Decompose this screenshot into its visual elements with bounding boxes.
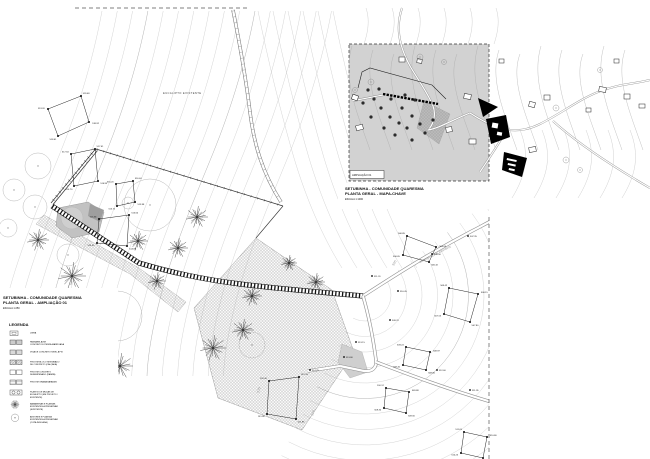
main-title-block: SETUBINHA - COMUNIDADE QUARESMA PLANTA G… [0, 288, 118, 459]
elevation-value: 518.92 [92, 123, 99, 125]
main-title-scale: ESCALA 1:250 [3, 307, 20, 310]
elevation-value: 506.32 [431, 264, 438, 266]
elevation-value: 508.40 [393, 366, 400, 368]
elevation-value: 518.61 [50, 139, 57, 141]
elevation-value: 511.20 [374, 276, 381, 278]
elevation-value: 509.24 [397, 344, 404, 346]
elevation-value: 509.30 [374, 410, 381, 412]
legend-item-label: LINHA [30, 331, 37, 334]
elevation-value: 508.42 [440, 285, 447, 287]
elevation-value: 507.80 [472, 325, 479, 327]
key-map-title-block: SETUBINHA - COMUNIDADE QUARESMA PLANTA G… [338, 183, 498, 209]
elevation-value: 512.60 [439, 370, 446, 372]
elevation-value: 516.70 [66, 189, 73, 191]
elevation-value: 512.18 [301, 374, 308, 376]
elevation-value: 515.72 [108, 209, 115, 211]
elevation-value: 514.88 [129, 248, 136, 250]
legend-item-label: PISO EM BLOCO SEXTAVADODE CONCRETO (CALÇ… [30, 360, 60, 366]
elevation-value: 508.97 [433, 350, 440, 352]
elevation-value: 506.85 [398, 233, 405, 235]
elevation-value: 519.20 [38, 108, 45, 110]
elevation-value: 509.88 [412, 390, 419, 392]
elevation-value: 516.44 [135, 178, 142, 180]
elevation-value: 512.40 [260, 378, 267, 380]
legend-title: LEGENDA [9, 322, 29, 327]
elevation-value: 510.80 [490, 435, 497, 437]
elevation-value: 513.80 [346, 357, 353, 359]
legend-item-label: PISO EM GRAMA BATATAIS [30, 380, 57, 383]
elevation-value: 508.66 [428, 372, 435, 374]
key-map-scale: ESCALA 1:1000 [345, 198, 364, 201]
drawing-sheet: 519.20519.48518.92518.61517.34517.61516.… [0, 0, 650, 459]
elevation-value: 513.15 [358, 342, 365, 344]
area-label: EUCALIPTO EXISTENTE [163, 91, 201, 95]
elevation-value: 519.48 [83, 93, 90, 95]
elevation-value: 516.95 [100, 183, 107, 185]
legend-item-label: VIGA DE CONCRETO NÍVEL A FIO [30, 350, 63, 353]
elevation-value: 511.05 [455, 429, 462, 431]
elevation-value: 506.05 [393, 256, 400, 258]
elevation-value: 509.55 [408, 416, 415, 418]
elevation-value: 514.25 [312, 370, 319, 372]
elevation-value: 508.15 [481, 292, 488, 294]
inset-extent-label: AMPLIAÇÃO 01 [350, 171, 384, 179]
elevation-value: 515.36 [90, 217, 97, 219]
elevation-value: 517.61 [97, 146, 104, 148]
elevation-value: 510.25 [451, 455, 458, 457]
elevation-value: 510.12 [377, 385, 384, 387]
elevation-value: 514.55 [88, 245, 95, 247]
elevation-value: 516.20 [107, 181, 114, 183]
elevation-value: 511.60 [258, 416, 265, 418]
elevation-value: 510.45 [400, 291, 407, 293]
site-plan-drawing: 519.20519.48518.92518.61517.34517.61516.… [0, 0, 650, 459]
elevation-value: 517.34 [62, 151, 69, 153]
elevation-value: 509.70 [392, 320, 399, 322]
elevation-value: 507.35 [470, 236, 477, 238]
elevation-value: 515.60 [131, 212, 138, 214]
elevation-value: 507.55 [434, 316, 441, 318]
elevation-value: 515.98 [138, 204, 145, 206]
elevation-value: 511.95 [472, 390, 479, 392]
elevation-value: 511.86 [298, 422, 305, 424]
